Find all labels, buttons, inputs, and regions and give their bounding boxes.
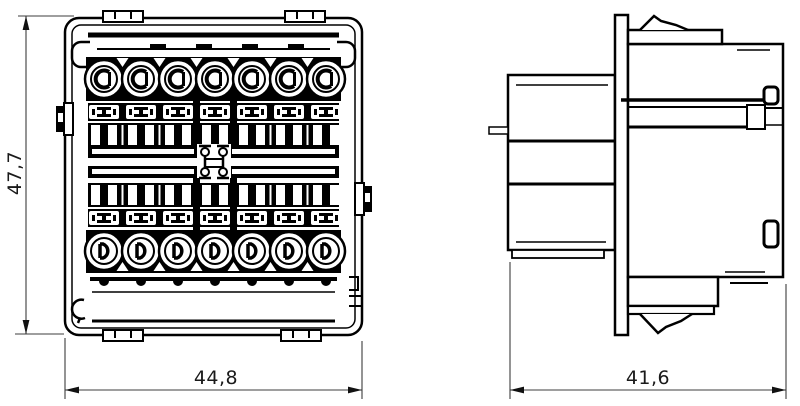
side-view — [489, 15, 783, 335]
contact-strip-3 — [88, 183, 346, 207]
arrowhead-up — [23, 16, 30, 30]
left-pin — [489, 127, 508, 134]
contact-strip-1 — [88, 103, 341, 121]
arrowhead-left — [510, 387, 524, 394]
mounting-flange — [615, 15, 628, 335]
arrowhead-left — [65, 387, 79, 394]
side-slot-upper — [764, 87, 778, 104]
mounting-tab-bottom-left — [103, 330, 143, 341]
mounting-tab-top-right — [285, 11, 325, 22]
bus-bar-upper-right — [230, 92, 237, 150]
left-coding-key — [56, 103, 73, 135]
dimension-label: 47,7 — [4, 151, 26, 195]
technical-drawing: 47,7 44,8 41,6 — [0, 0, 800, 406]
terminal-row-top — [85, 57, 345, 101]
top-latch — [628, 16, 722, 44]
contact-strip-2 — [88, 123, 346, 147]
center-connector — [197, 144, 231, 180]
drawing-canvas: 47,7 44,8 41,6 — [0, 0, 800, 406]
right-coding-key — [355, 183, 372, 215]
terminal-row-bottom — [85, 230, 345, 273]
mounting-tab-top-left — [103, 11, 143, 22]
dimension-label: 41,6 — [626, 367, 670, 389]
side-slot-lower — [764, 221, 778, 247]
plug-body — [508, 75, 615, 258]
contact-strip-4 — [88, 209, 341, 227]
arrowhead-down — [23, 320, 30, 334]
bus-bar-lower-right — [230, 178, 237, 234]
height-dimension: 47,7 — [4, 16, 74, 334]
bus-bar-upper-left — [193, 92, 200, 150]
front-view — [56, 11, 372, 341]
bus-bar-lower-left — [193, 178, 200, 234]
mounting-tab-bottom-right — [281, 330, 321, 341]
bottom-latch — [628, 306, 714, 333]
main-body — [628, 44, 783, 306]
front-width-dimension: 44,8 — [65, 338, 362, 399]
arrowhead-right — [772, 387, 786, 394]
arrowhead-right — [348, 387, 362, 394]
dimension-label: 44,8 — [194, 367, 238, 389]
